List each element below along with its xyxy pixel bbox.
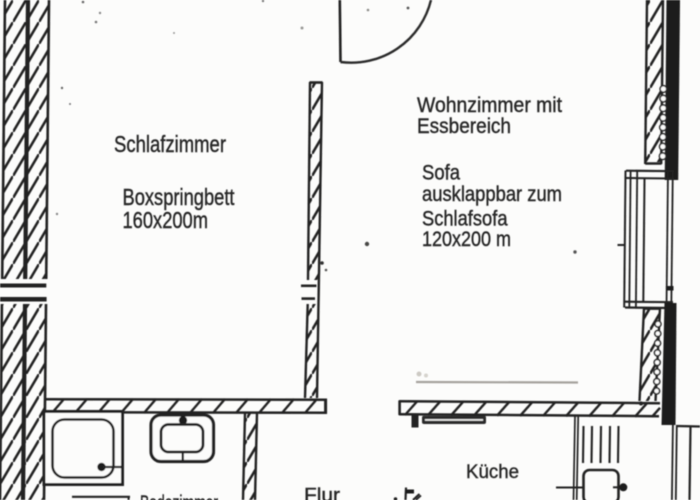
svg-text:ausklappbar zum: ausklappbar zum	[422, 183, 562, 206]
svg-text:Wohnzimmer mit: Wohnzimmer mit	[417, 94, 562, 117]
svg-text:Küche: Küche	[466, 461, 519, 483]
svg-text:120x200 m: 120x200 m	[422, 228, 511, 251]
svg-text:Badezimmer: Badezimmer	[140, 493, 218, 500]
svg-text:160x200m: 160x200m	[123, 207, 209, 233]
svg-text:Flur: Flur	[304, 485, 341, 500]
svg-text:Schlafzimmer: Schlafzimmer	[114, 131, 226, 157]
svg-text:Sofa: Sofa	[422, 162, 460, 185]
svg-text:Essbereich: Essbereich	[417, 115, 511, 138]
